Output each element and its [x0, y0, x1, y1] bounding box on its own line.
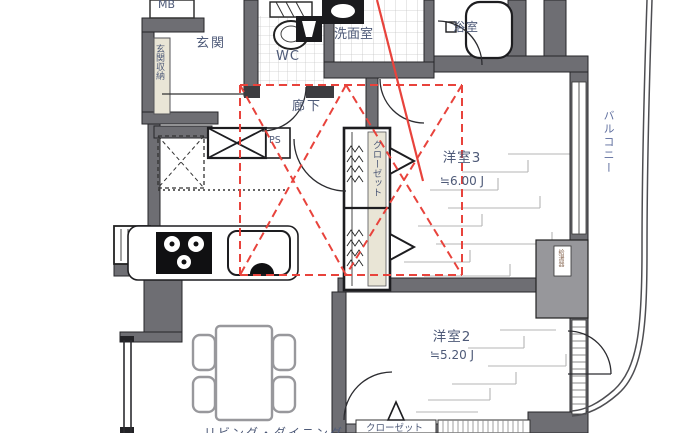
- room-size-bedroom3: ≒6.00 J: [420, 175, 504, 187]
- room-label-closet: クローゼット: [371, 140, 381, 290]
- floor-plan-drawing: [0, 0, 700, 433]
- bay-window: [124, 340, 131, 433]
- room-label-washroom: 洗面室: [334, 28, 373, 41]
- window-bedroom3: [572, 82, 586, 234]
- room-label-wc: WC: [276, 50, 300, 63]
- room-label-entrance-storage: 玄関収納: [154, 44, 163, 114]
- room-label-corridor: 廊下: [292, 100, 322, 113]
- room-label-closet-bottom: クローゼット: [366, 424, 423, 433]
- dining-set: [193, 326, 295, 420]
- room-label-bedroom2: 洋室2: [420, 331, 484, 345]
- floor-plan: MB 玄関 玄関収納 WC 洗面室 浴室 廊下 PS クローゼット 洋室3 ≒6…: [0, 0, 700, 433]
- room-size-bedroom2: ≒5.20 J: [410, 349, 494, 361]
- room-label-ps: PS: [269, 136, 281, 146]
- label-water-heater: 給湯器: [557, 249, 563, 275]
- room-label-mb: MB: [158, 0, 175, 10]
- room-label-entrance: 玄関: [196, 37, 226, 50]
- room-label-bathroom: 浴室: [453, 21, 479, 33]
- room-label-living-dining: リビング・ダイニング: [204, 427, 344, 433]
- folding-door-bedroom2: [388, 402, 404, 420]
- kitchen-counter: [128, 226, 298, 280]
- room-label-balcony: バルコニー: [603, 110, 614, 175]
- room-label-bedroom3: 洋室3: [430, 152, 494, 166]
